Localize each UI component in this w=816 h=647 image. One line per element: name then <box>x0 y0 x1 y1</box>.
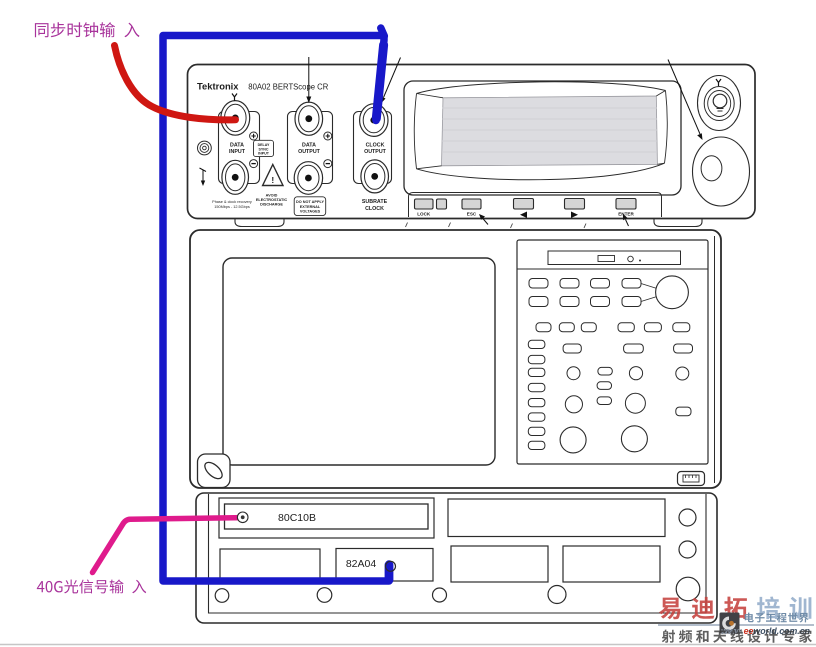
svg-text:82A04: 82A04 <box>346 558 377 570</box>
svg-text:DATA: DATA <box>230 143 244 149</box>
svg-text:INPUT: INPUT <box>258 152 270 156</box>
svg-text:DISCHARGE: DISCHARGE <box>260 203 283 207</box>
svg-text:80C10B: 80C10B <box>278 512 316 524</box>
svg-text:Phase & clock recovery: Phase & clock recovery <box>212 200 252 204</box>
svg-text:DO NOT APPLY: DO NOT APPLY <box>296 200 324 204</box>
svg-text:150Mbps - 12.5Gbps: 150Mbps - 12.5Gbps <box>214 205 250 209</box>
svg-text:ESC: ESC <box>467 212 477 217</box>
svg-text:CLOCK: CLOCK <box>365 206 384 212</box>
svg-text:Tektronix: Tektronix <box>197 80 239 91</box>
svg-text:VOLTAGES: VOLTAGES <box>300 210 321 214</box>
svg-text:DATA: DATA <box>302 143 316 149</box>
svg-text:!: ! <box>271 175 274 185</box>
svg-text:OUTPUT: OUTPUT <box>364 149 387 155</box>
svg-text:ENTER: ENTER <box>618 212 634 217</box>
svg-text:SUBRATE: SUBRATE <box>362 199 388 205</box>
svg-text:80A02 BERTScope CR: 80A02 BERTScope CR <box>248 81 328 91</box>
svg-text:ELECTROSTATIC: ELECTROSTATIC <box>256 198 288 202</box>
svg-text:EXTERNAL: EXTERNAL <box>300 205 321 209</box>
svg-text:AVOID: AVOID <box>266 194 278 198</box>
svg-text:INPUT: INPUT <box>229 149 246 155</box>
svg-text:CLOCK: CLOCK <box>366 143 385 149</box>
svg-text:OUTPUT: OUTPUT <box>298 149 321 155</box>
svg-text:LOCK: LOCK <box>417 212 431 217</box>
